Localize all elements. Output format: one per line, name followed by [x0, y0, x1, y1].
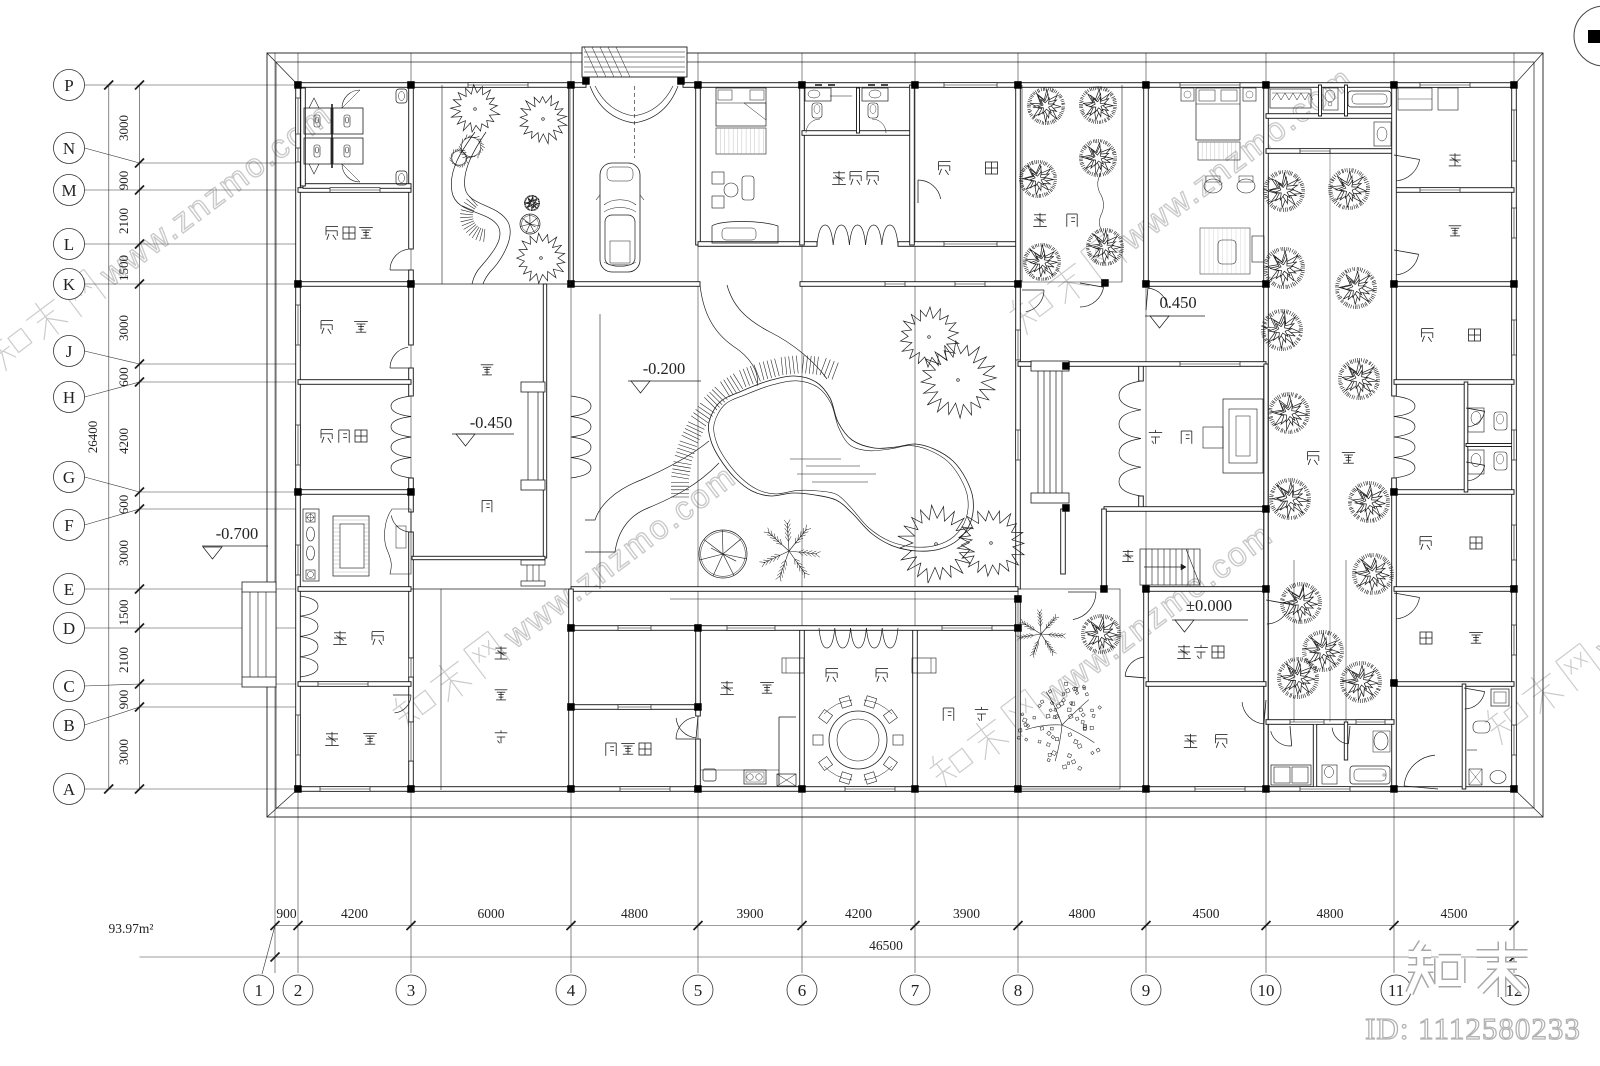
svg-text:G: G — [63, 468, 75, 487]
svg-text:900: 900 — [276, 906, 297, 921]
svg-text:26400: 26400 — [85, 421, 100, 454]
svg-text:1: 1 — [254, 981, 263, 1000]
svg-text:B: B — [63, 716, 74, 735]
svg-text:K: K — [63, 275, 76, 294]
svg-text:4200: 4200 — [341, 906, 368, 921]
svg-text:900: 900 — [116, 171, 131, 191]
svg-text:600: 600 — [116, 495, 131, 515]
svg-text:11: 11 — [1388, 981, 1404, 1000]
svg-text:ID: 1112580233: ID: 1112580233 — [1365, 1011, 1581, 1046]
svg-text:7: 7 — [911, 981, 920, 1000]
svg-text:D: D — [63, 619, 75, 638]
svg-text:N: N — [63, 139, 75, 158]
svg-text:3000: 3000 — [116, 115, 131, 141]
svg-text:600: 600 — [116, 367, 131, 387]
svg-text:F: F — [64, 516, 73, 535]
svg-text:4800: 4800 — [1069, 906, 1096, 921]
svg-text:±0.000: ±0.000 — [1186, 596, 1232, 615]
svg-text:3000: 3000 — [116, 315, 131, 341]
svg-text:4: 4 — [567, 981, 576, 1000]
svg-text:4800: 4800 — [1317, 906, 1344, 921]
svg-text:P: P — [64, 76, 73, 95]
svg-text:3000: 3000 — [116, 540, 131, 566]
svg-text:2100: 2100 — [116, 647, 131, 673]
svg-text:9: 9 — [1142, 981, 1151, 1000]
svg-text:6: 6 — [798, 981, 807, 1000]
svg-text:1500: 1500 — [116, 255, 131, 281]
svg-text:2: 2 — [294, 981, 303, 1000]
svg-text:3900: 3900 — [737, 906, 764, 921]
svg-text:E: E — [64, 580, 74, 599]
svg-text:5: 5 — [694, 981, 703, 1000]
svg-text:L: L — [64, 235, 74, 254]
svg-text:3: 3 — [407, 981, 416, 1000]
svg-text:4800: 4800 — [621, 906, 648, 921]
svg-text:46500: 46500 — [869, 938, 903, 953]
svg-text:C: C — [63, 677, 74, 696]
svg-text:-0.700: -0.700 — [216, 524, 259, 543]
svg-text:4500: 4500 — [1193, 906, 1220, 921]
svg-text:2100: 2100 — [116, 208, 131, 234]
svg-text:H: H — [63, 388, 75, 407]
svg-text:M: M — [61, 181, 76, 200]
svg-text:4500: 4500 — [1441, 906, 1468, 921]
svg-text:0.450: 0.450 — [1159, 293, 1196, 312]
svg-text:-0.200: -0.200 — [643, 359, 686, 378]
svg-text:900: 900 — [116, 690, 131, 710]
svg-text:4200: 4200 — [845, 906, 872, 921]
svg-text:-0.450: -0.450 — [470, 413, 513, 432]
svg-text:6000: 6000 — [478, 906, 505, 921]
svg-text:4200: 4200 — [116, 428, 131, 454]
svg-text:10: 10 — [1258, 981, 1275, 1000]
svg-text:1500: 1500 — [116, 600, 131, 626]
svg-text:J: J — [66, 342, 73, 361]
svg-text:A: A — [63, 780, 76, 799]
svg-text:3000: 3000 — [116, 739, 131, 765]
svg-text:3900: 3900 — [953, 906, 980, 921]
svg-text:93.97m²: 93.97m² — [109, 921, 154, 936]
svg-text:8: 8 — [1014, 981, 1023, 1000]
